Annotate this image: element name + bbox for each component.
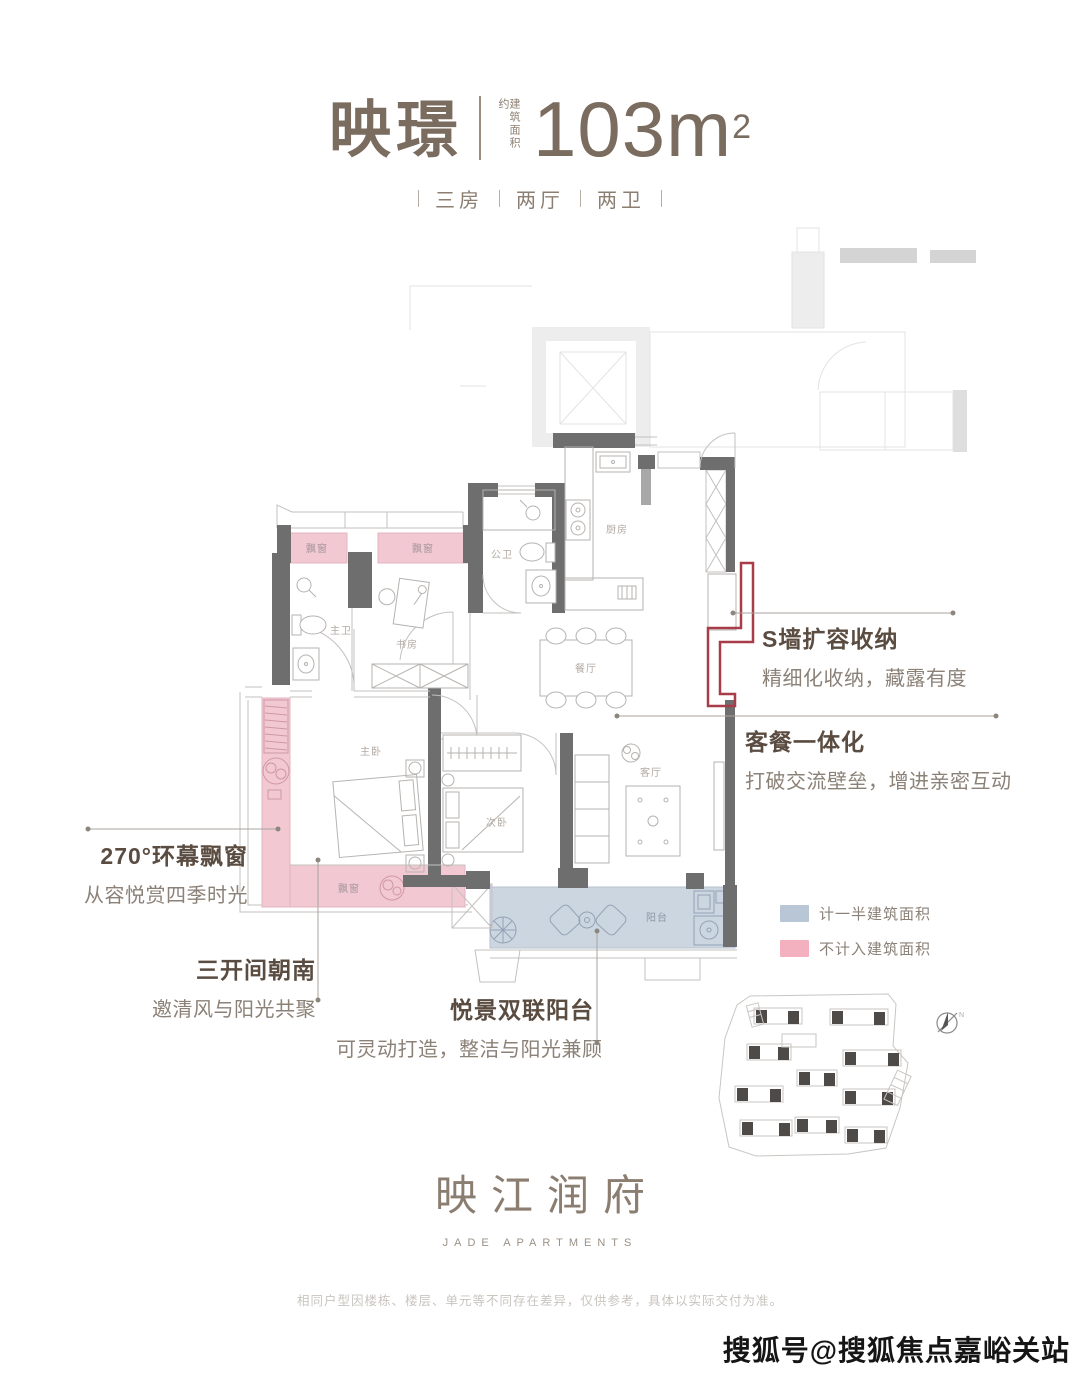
legend-swatch-half-area bbox=[780, 905, 809, 922]
ghost-structures bbox=[410, 228, 976, 452]
north-compass-icon: N bbox=[937, 1012, 964, 1033]
legend-swatch-no-area bbox=[780, 940, 809, 957]
label-public-bath: 公卫 bbox=[491, 550, 513, 561]
legend-no-area: 不计入建筑面积 bbox=[780, 938, 931, 959]
disclaimer-text: 相同户型因楼栋、楼层、单元等不同存在差异，仅供参考，具体以实际交付为准。 bbox=[0, 1290, 1080, 1309]
furniture-layer bbox=[292, 447, 736, 872]
site-buildings bbox=[735, 1003, 911, 1143]
callout-balcony: 悦景双联阳台 可灵动打造，整洁与阳光兼顾 bbox=[336, 991, 594, 1062]
area-legend: 计一半建筑面积 不计入建筑面积 bbox=[780, 903, 931, 973]
label-bay-window-1: 飘窗 bbox=[306, 542, 328, 555]
balcony-blue bbox=[490, 887, 735, 948]
callout-bay-window-desc: 从容悦赏四季时光 bbox=[56, 879, 248, 908]
label-master-bedroom: 主卧 bbox=[360, 745, 382, 758]
callout-south-facing-desc: 邀清风与阳光共聚 bbox=[124, 993, 316, 1022]
callout-dining-desc: 打破交流壁垒，增进亲密互动 bbox=[745, 765, 1012, 794]
label-dining: 餐厅 bbox=[575, 662, 597, 675]
callout-balcony-title: 悦景双联阳台 bbox=[336, 991, 594, 1025]
watermark-text: 搜狐号@搜狐焦点嘉峪关站 bbox=[723, 1329, 1070, 1369]
compass-north-label: N bbox=[959, 1012, 964, 1019]
callout-dining: 客餐一体化 打破交流壁垒，增进亲密互动 bbox=[745, 723, 1012, 794]
brand-name-en: JADE APARTMENTS bbox=[0, 1237, 1080, 1249]
callout-south-facing: 三开间朝南 邀清风与阳光共聚 bbox=[124, 951, 316, 1022]
callout-bay-window-title: 270°环幕飘窗 bbox=[56, 837, 248, 871]
label-study: 书房 bbox=[396, 638, 418, 651]
label-bay-window-2: 飘窗 bbox=[412, 542, 434, 555]
callout-balcony-desc: 可灵动打造，整洁与阳光兼顾 bbox=[336, 1033, 594, 1062]
door-arcs bbox=[312, 433, 735, 775]
callout-south-facing-title: 三开间朝南 bbox=[124, 951, 316, 985]
label-master-bath: 主卫 bbox=[330, 625, 352, 637]
label-bay-window-3: 飘窗 bbox=[338, 882, 360, 895]
brand-logo: 映江润府 JADE APARTMENTS bbox=[0, 1162, 1080, 1249]
callout-s-wall: S墙扩容收纳 精细化收纳，藏露有度 bbox=[762, 620, 967, 691]
callout-dining-title: 客餐一体化 bbox=[745, 723, 1012, 757]
callout-bay-window: 270°环幕飘窗 从容悦赏四季时光 bbox=[56, 837, 248, 908]
brand-name-cn: 映江润府 bbox=[0, 1162, 1080, 1223]
label-balcony: 阳台 bbox=[646, 911, 668, 924]
legend-label-half-area: 计一半建筑面积 bbox=[819, 903, 931, 924]
callout-s-wall-desc: 精细化收纳，藏露有度 bbox=[762, 662, 967, 691]
callout-s-wall-title: S墙扩容收纳 bbox=[762, 620, 967, 654]
site-plan bbox=[719, 994, 911, 1156]
label-second-bedroom: 次卧 bbox=[486, 816, 508, 829]
label-living-room: 客厅 bbox=[640, 766, 662, 779]
legend-half-area: 计一半建筑面积 bbox=[780, 903, 931, 924]
label-kitchen: 厨房 bbox=[606, 523, 628, 536]
legend-label-no-area: 不计入建筑面积 bbox=[819, 938, 931, 959]
